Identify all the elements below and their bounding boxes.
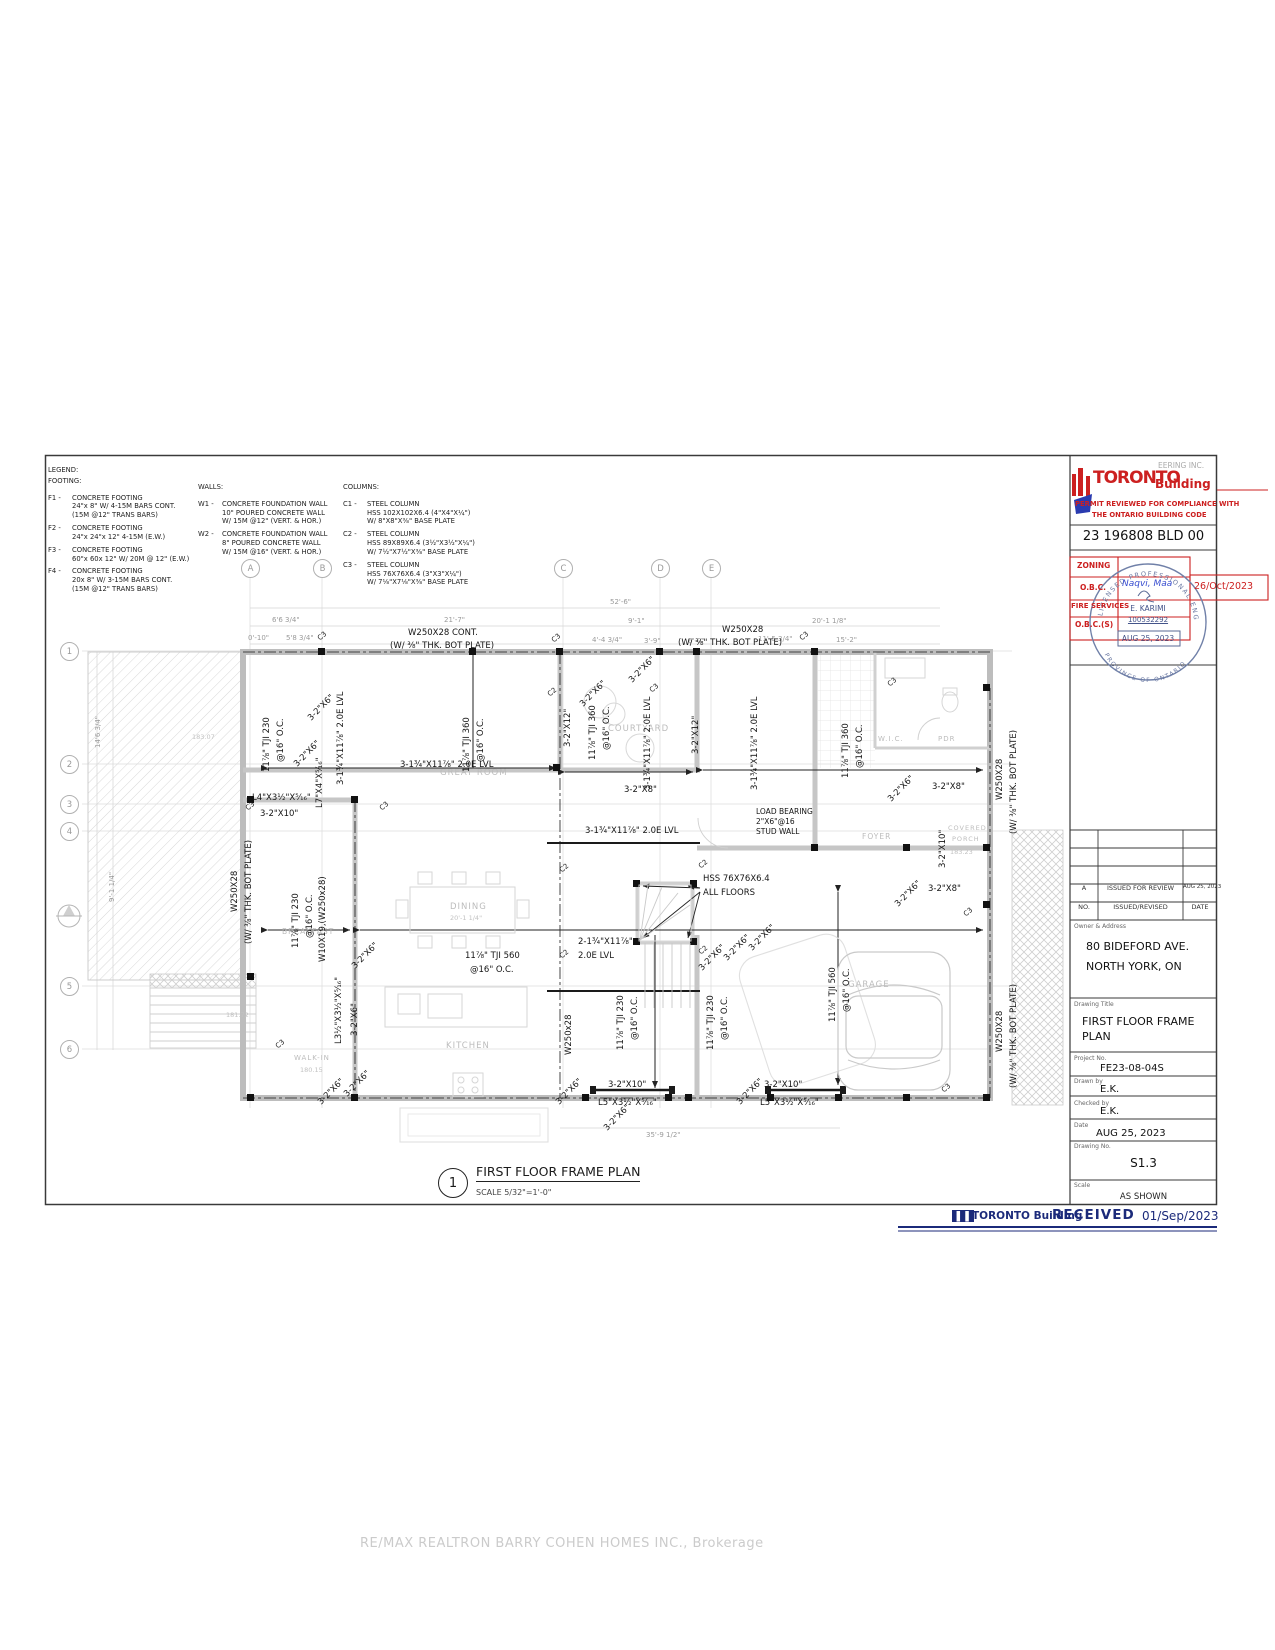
project-no-value: FE23-08-04S: [1100, 1063, 1164, 1074]
joist-label: @16" O.C.: [470, 965, 514, 975]
beam-label: (W/ ⅜" THK. BOT PLATE): [390, 641, 494, 651]
seal-license-number: 100532292: [1098, 616, 1198, 624]
legend-item-id: W2 -: [198, 530, 222, 556]
legend-item-text: STEEL COLUMN HSS 89X89X6.4 (3½"X3½"X¼") …: [367, 530, 475, 556]
legend-columns: COLUMNS: C1 -STEEL COLUMN HSS 102X102X6.…: [343, 483, 493, 591]
revision-header-date: DATE: [1183, 903, 1217, 911]
stairs: [639, 885, 691, 1008]
beam-label: 3-1¾"X11⅞" 2.0E LVL: [585, 826, 678, 836]
brokerage-watermark: RE/MAX REALTRON BARRY COHEN HOMES INC., …: [360, 1536, 764, 1551]
grid-number: 2: [67, 760, 72, 770]
date-label: Date: [1074, 1122, 1088, 1129]
grid-number: 5: [67, 982, 72, 992]
legend-item-text: CONCRETE FOOTING 60"x 60x 12" W/ 20M @ 1…: [72, 546, 189, 564]
legend-footing-heading: FOOTING:: [48, 477, 198, 486]
beam-label: (W/ ⅜" THK. BOT PLATE): [678, 638, 782, 648]
revision-header-no: NO.: [1070, 903, 1098, 911]
wall-note: LOAD BEARING: [756, 807, 813, 816]
owner-label: Owner & Address: [1074, 923, 1126, 930]
spot-elevation: 183.07: [192, 733, 215, 741]
grid-bubble-2: 2: [60, 755, 79, 774]
revision-header-desc: ISSUED/REVISED: [1098, 903, 1183, 911]
legend-item-w1: W1 -CONCRETE FOUNDATION WALL 10" POURED …: [198, 500, 338, 526]
lintel-label: 3-2"X8": [928, 884, 961, 894]
revision-letter: A: [1070, 884, 1098, 892]
checked-by-value: E.K.: [1100, 1106, 1119, 1117]
grid-bubble-5: 5: [60, 977, 79, 996]
grid-bubble-4: 4: [60, 822, 79, 841]
legend-item-id: C2 -: [343, 530, 367, 556]
dim: 14'6 3/4": [94, 716, 102, 748]
grid-letter: B: [320, 564, 326, 574]
grid-bubble-3: 3: [60, 795, 79, 814]
wall-note: 2"X6"@16: [756, 817, 795, 826]
bath-fixtures: [885, 658, 958, 712]
grid-bubble-a: A: [241, 559, 260, 578]
drawn-by-label: Drawn by: [1074, 1078, 1103, 1085]
grid-number: 3: [67, 800, 72, 810]
legend-item-text: CONCRETE FOUNDATION WALL 10" POURED CONC…: [222, 500, 327, 526]
legend-walls-heading: WALLS:: [198, 483, 338, 492]
beam-label: 2.0E LVL: [578, 951, 614, 961]
joist-label: 11⅞" TJI 360: [841, 723, 851, 778]
legend-item-id: C1 -: [343, 500, 367, 526]
drawing-sheet: LICENSED PROFESSIONAL ENGINEER PROVINCE …: [0, 0, 1275, 1650]
room-dining-dim: 20'-1 1/4": [450, 914, 482, 922]
joist-label: 11⅞" TJI 230: [706, 995, 716, 1050]
dim: 5'8 3/4": [286, 634, 314, 642]
legend-item-w2: W2 -CONCRETE FOUNDATION WALL 8" POURED C…: [198, 530, 338, 556]
beam-label: W250X28: [230, 871, 240, 912]
legend-item-text: CONCRETE FOOTING 20x 8" W/ 3-15M BARS CO…: [72, 567, 172, 593]
lintel-label: 3-2"X8": [932, 782, 965, 792]
grid-number: 1: [67, 647, 72, 657]
drawn-by-value: E.K.: [1100, 1084, 1119, 1095]
plan-title: FIRST FLOOR FRAME PLAN: [476, 1164, 640, 1182]
legend-item-c3: C3 -STEEL COLUMN HSS 76X76X6.4 (3"X3"X¼"…: [343, 561, 493, 587]
stamp-row-zoning: ZONING: [1077, 561, 1110, 570]
dim: 21'-7": [444, 616, 465, 624]
legend-walls: WALLS: W1 -CONCRETE FOUNDATION WALL 10" …: [198, 483, 338, 561]
spot-elevation: 183.23: [950, 848, 973, 856]
owner-address-line1: 80 BIDEFORD AVE.: [1086, 940, 1189, 953]
spot-elevation: 181.72: [226, 1011, 249, 1019]
room-dining: DINING: [450, 902, 487, 912]
room-courtyard: COURTYARD: [608, 724, 669, 734]
angle-label: L3½"X3½"X⁵⁄₁₆": [334, 977, 344, 1044]
drawing-no-label: Drawing No.: [1074, 1143, 1111, 1150]
stamp-review-line2: THE ONTARIO BUILDING CODE: [1092, 511, 1207, 519]
angle-label: L7"X4"X⁵⁄₁₆": [315, 757, 325, 808]
plan-geometry: LICENSED PROFESSIONAL ENGINEER PROVINCE …: [0, 0, 1275, 1650]
dim: 0'-10": [248, 634, 269, 642]
section-marker-icon: [56, 905, 82, 927]
legend-item-text: CONCRETE FOOTING 24"x 8" W/ 4-15M BARS C…: [72, 494, 175, 520]
room-wic: W.I.C.: [878, 735, 904, 743]
room-walkin: WALK-IN: [294, 1054, 330, 1062]
legend-columns-heading: COLUMNS:: [343, 483, 493, 492]
legend-item-f3: F3 -CONCRETE FOOTING 60"x 60x 12" W/ 20M…: [48, 546, 198, 564]
stamp-review-line1: PERMIT REVIEWED FOR COMPLIANCE WITH: [1075, 500, 1239, 508]
lintel-label: 3-2"X12": [563, 709, 573, 747]
car-outline-2: [734, 929, 880, 1091]
seal-date: AUG 25, 2023: [1098, 634, 1198, 643]
permit-number: 23 196808 BLD 00: [1070, 529, 1217, 544]
joist-label: 11⅞" TJI 360: [588, 705, 598, 760]
drawing-no-value: S1.3: [1070, 1156, 1217, 1170]
joist-label: @16" O.C.: [602, 706, 612, 750]
callout-number: 1: [449, 1176, 457, 1191]
angle-label: L5"X3½"X⁵⁄₁₆": [760, 1098, 819, 1108]
project-no-label: Project No.: [1074, 1055, 1106, 1062]
joist-label: 11⅞" TJI 560: [465, 951, 520, 961]
joist-label: 11⅞" TJI 560: [828, 967, 838, 1022]
deck-hatch: [88, 652, 243, 980]
column-note: HSS 76X76X6.4: [703, 874, 770, 884]
joist-label: @16" O.C.: [630, 996, 640, 1040]
beam-label: W250x28: [564, 1015, 574, 1055]
beam-label: 2-1¾"X11⅞": [578, 937, 633, 947]
revision-date: AUG 25, 2023: [1183, 884, 1217, 890]
beam-label: 3-1¾"X11⅞" 2.0E LVL: [336, 692, 346, 785]
dim: 4'-4 3/4": [592, 636, 622, 644]
revision-desc: ISSUED FOR REVIEW: [1098, 884, 1183, 892]
svg-text:PROVINCE OF ONTARIO: PROVINCE OF ONTARIO: [1103, 652, 1188, 684]
legend-item-f2: F2 -CONCRETE FOOTING 24"x 24"x 12" 4-15M…: [48, 524, 198, 542]
grid-number: 6: [67, 1045, 72, 1055]
legend-item-id: F3 -: [48, 546, 72, 564]
legend-item-c1: C1 -STEEL COLUMN HSS 102X102X6.4 (4"X4"X…: [343, 500, 493, 526]
joist-label: @16" O.C.: [842, 968, 852, 1012]
room-foyer: FOYER: [862, 832, 891, 841]
room-kitchen: KITCHEN: [446, 1041, 490, 1051]
drawing-title-line2: PLAN: [1082, 1030, 1111, 1043]
angle-label: L4"X3½"X⁵⁄₁₆": [252, 793, 311, 803]
beam-label: W250X28: [722, 625, 763, 635]
dim: 15'-2": [836, 636, 857, 644]
walkway-hatch: [1012, 830, 1063, 1105]
lintel-label: 3-2"X6": [350, 1003, 360, 1036]
lintel-label: 3-2"X12": [691, 716, 701, 754]
beam-label: W250X28: [995, 1011, 1005, 1052]
lintel-label: 3-2"X10": [764, 1080, 802, 1090]
legend-item-id: C3 -: [343, 561, 367, 587]
joist-label: 11⅞" TJI 230: [616, 995, 626, 1050]
callout-bubble: 1: [438, 1168, 468, 1198]
legend-item-f4: F4 -CONCRETE FOOTING 20x 8" W/ 3-15M BAR…: [48, 567, 198, 593]
stamp-row-obc: O.B.C.: [1080, 583, 1106, 592]
review-date: 26/Oct/2023: [1194, 581, 1253, 592]
seal-engineer-name: E. KARIMI: [1098, 604, 1198, 613]
dim: 3'-9": [644, 637, 661, 645]
joist-label: @16" O.C.: [855, 724, 865, 768]
scale-label: Scale: [1074, 1182, 1090, 1189]
seal-arc-bottom-text: PROVINCE OF ONTARIO: [1103, 652, 1188, 684]
date-value: AUG 25, 2023: [1096, 1128, 1166, 1139]
column-note: ALL FLOORS: [703, 888, 755, 898]
legend-item-text: CONCRETE FOOTING 24"x 24"x 12" 4-15M (E.…: [72, 524, 165, 542]
beam-label: (W/ ⅜" THK. BOT PLATE): [244, 840, 254, 944]
drawing-title-label: Drawing Title: [1074, 1001, 1114, 1008]
lintel-label: 3-2"X10": [608, 1080, 646, 1090]
grid-bubble-6: 6: [60, 1040, 79, 1059]
owner-address-line2: NORTH YORK, ON: [1086, 960, 1182, 973]
grid-number: 4: [67, 827, 72, 837]
legend-item-id: F2 -: [48, 524, 72, 542]
lintel-label: 3-2"X10": [260, 809, 298, 819]
dim: 9'-1 1/4": [108, 872, 116, 902]
car-outline: [838, 952, 950, 1090]
legend-item-text: STEEL COLUMN HSS 102X102X6.4 (4"X4"X¼") …: [367, 500, 470, 526]
stamp-brand-building: Building: [1155, 477, 1211, 491]
room-pdr: PDR: [938, 735, 955, 743]
beam-label: (W/ ⅜" THK. BOT PLATE): [1009, 984, 1019, 1088]
joist-label: 11⅞" TJI 230: [262, 717, 272, 772]
received-logo-icon: ❚❚: [952, 1210, 974, 1222]
received-word: RECEIVED: [1052, 1207, 1135, 1223]
examiner-signature: Naqvi, Maa: [1122, 579, 1172, 589]
legend-item-text: CONCRETE FOUNDATION WALL 8" POURED CONCR…: [222, 530, 327, 556]
beam-label: W250X28 CONT.: [408, 628, 478, 638]
joist-label: @16" O.C.: [720, 996, 730, 1040]
grid-bubble-e: E: [702, 559, 721, 578]
dim: 35'-9 1/2": [646, 1131, 681, 1139]
grid-bubble-c: C: [554, 559, 573, 578]
legend-item-f1: F1 -CONCRETE FOOTING 24"x 8" W/ 4-15M BA…: [48, 494, 198, 520]
received-date: 01/Sep/2023: [1142, 1209, 1219, 1223]
beam-label: W10X19,(W250x28): [318, 876, 328, 962]
grid-letter: A: [248, 564, 254, 574]
legend-item-id: F4 -: [48, 567, 72, 593]
dim: 9'-1": [628, 617, 645, 625]
legend-title: LEGEND:: [48, 466, 198, 475]
wall-note: STUD WALL: [756, 827, 799, 836]
lintel-label: 3-2"X10": [938, 830, 948, 868]
legend-item-id: W1 -: [198, 500, 222, 526]
beam-label: 3-1¾"X11⅞" 2.0E LVL: [643, 697, 653, 790]
legend-item-c2: C2 -STEEL COLUMN HSS 89X89X6.4 (3½"X3½"X…: [343, 530, 493, 556]
dim-overall: 52'-6": [610, 598, 631, 606]
joist-label: @16" O.C.: [276, 718, 286, 762]
plan-scale: SCALE 5/32"=1'-0": [476, 1188, 551, 1197]
grid-letter: C: [561, 564, 567, 574]
lintel-label: 3-2"X8": [624, 785, 657, 795]
legend-item-id: F1 -: [48, 494, 72, 520]
dim: 20'-1 1/8": [812, 617, 847, 625]
joist-label: @16" O.C.: [476, 718, 486, 762]
grid-letter: D: [657, 564, 664, 574]
room-porch: PORCH: [952, 835, 980, 843]
spot-elevation: 180.15: [300, 1066, 323, 1074]
joist-label: 11⅞" TJI 230: [291, 893, 301, 948]
room-covered: COVERED: [948, 824, 987, 832]
beam-label: 3-1¾"X11⅞" 2.0E LVL: [750, 697, 760, 790]
beam-label: 3-1¾"X11⅞" 2.0E LVL: [400, 760, 493, 770]
grid-bubble-b: B: [313, 559, 332, 578]
grid-bubble-d: D: [651, 559, 670, 578]
room-garage: GARAGE: [848, 980, 890, 990]
joist-label: @16" O.C.: [305, 894, 315, 938]
legend-footing: LEGEND: FOOTING: F1 -CONCRETE FOOTING 24…: [48, 466, 198, 598]
grid-letter: E: [709, 564, 714, 574]
grid-bubble-1: 1: [60, 642, 79, 661]
scale-value: AS SHOWN: [1070, 1192, 1217, 1202]
dim: 6'6 3/4": [272, 616, 300, 624]
beam-label: (W/ ⅜" THK. BOT PLATE): [1009, 730, 1019, 834]
legend-item-text: STEEL COLUMN HSS 76X76X6.4 (3"X3"X¼") W/…: [367, 561, 468, 587]
beam-label: W250X28: [995, 759, 1005, 800]
drawing-title-line1: FIRST FLOOR FRAME: [1082, 1015, 1194, 1028]
